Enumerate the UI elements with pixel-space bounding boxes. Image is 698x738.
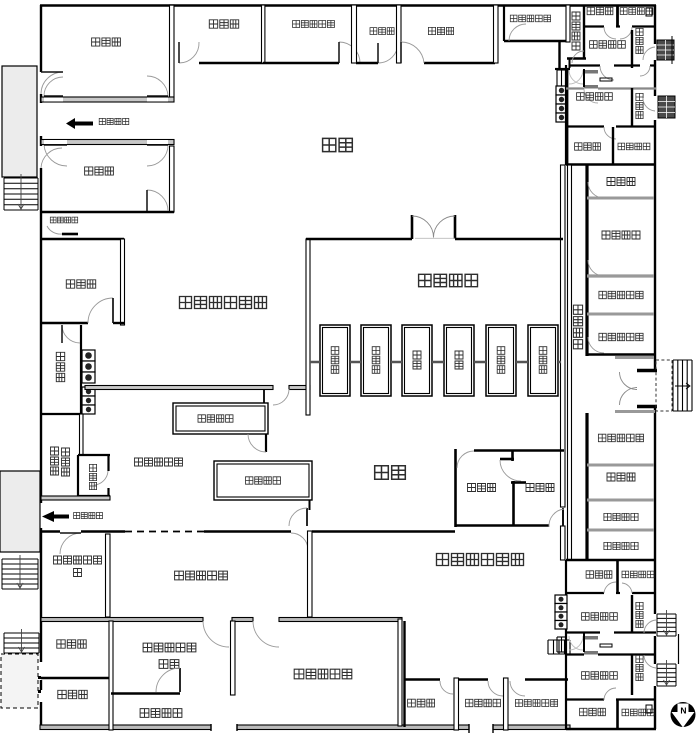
svg-text:N: N (680, 706, 686, 716)
